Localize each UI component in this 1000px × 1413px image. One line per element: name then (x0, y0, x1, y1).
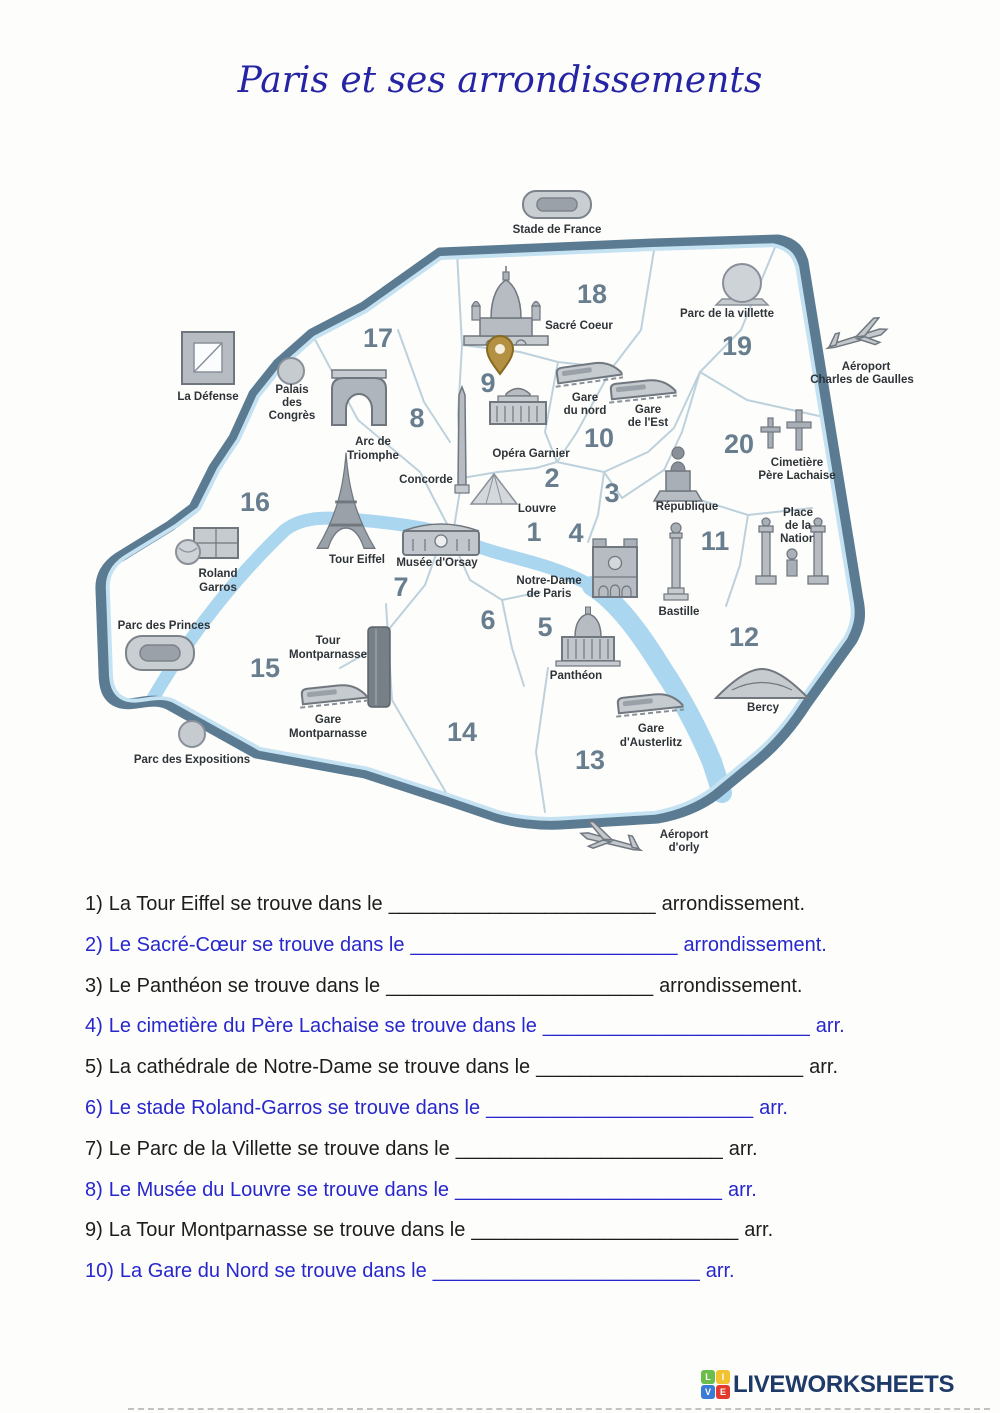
question-text: Le cimetière du Père Lachaise se trouve … (109, 1015, 537, 1037)
district-number: 4 (568, 518, 583, 548)
bercy-icon (716, 669, 808, 698)
sacre-coeur-icon (464, 266, 548, 345)
district-number: 10 (584, 423, 614, 453)
place-de-la-nation-label: Nation (780, 533, 816, 545)
question-suffix: arr. (816, 1015, 845, 1037)
gare-montparnasse-label: Gare (315, 714, 341, 726)
palais-des-congres-icon (278, 358, 304, 384)
pantheon-icon (556, 607, 620, 666)
logo-tile-e: E (716, 1385, 730, 1399)
aeroport-orly-label: d'orly (669, 842, 700, 854)
paris-arrondissements-map: 1 2 3 4 5 6 7 8 9 10 11 12 13 14 15 16 1… (0, 170, 1000, 870)
district-number: 18 (577, 279, 607, 309)
parc-de-la-villette-icon (716, 264, 768, 305)
question-suffix: arr. (728, 1179, 757, 1201)
parc-de-la-villette-label: Parc de la villette (680, 308, 774, 320)
question-suffix: arr. (809, 1056, 838, 1078)
tour-montparnasse-label: Montparnasse (289, 649, 367, 661)
answer-blank[interactable]: ________________________ (433, 1260, 700, 1282)
question-text: Le stade Roland-Garros se trouve dans le (109, 1097, 480, 1119)
arc-de-triomphe-label: Triomphe (347, 450, 399, 462)
question-number: 10) (85, 1260, 114, 1282)
district-number: 5 (537, 612, 552, 642)
question-number: 4) (85, 1015, 103, 1037)
tour-montparnasse-label: Tour (316, 635, 341, 647)
district-number: 2 (544, 463, 559, 493)
district-number: 3 (604, 478, 619, 508)
question-row: 6)Le stade Roland-Garros se trouve dans … (85, 1088, 851, 1129)
district-number: 14 (447, 717, 477, 747)
question-text: Le Musée du Louvre se trouve dans le (109, 1179, 449, 1201)
gare-de-lest-label: Gare (635, 404, 661, 416)
gare-de-lest-label: de l'Est (628, 417, 669, 429)
gare-montparnasse-label: Montparnasse (289, 728, 367, 740)
answer-blank[interactable]: ________________________ (486, 1097, 753, 1119)
question-row: 10)La Gare du Nord se trouve dans le____… (85, 1251, 851, 1292)
question-number: 9) (85, 1219, 103, 1241)
gare-du-nord-label: Gare (572, 392, 598, 404)
place-de-la-nation-label: Place (783, 507, 813, 519)
parc-des-expositions-label: Parc des Expositions (134, 754, 250, 766)
notre-dame-label: Notre-Dame (516, 575, 581, 587)
gare-austerlitz-label: d'Austerlitz (620, 737, 682, 749)
palais-des-congres-label: Congrès (269, 410, 316, 422)
question-row: 7)Le Parc de la Villette se trouve dans … (85, 1129, 851, 1170)
answer-blank[interactable]: ________________________ (536, 1056, 803, 1078)
la-defense-label: La Défense (177, 391, 238, 403)
liveworksheets-tiles-icon: L I V E (701, 1370, 730, 1399)
gare-montparnasse-icon (298, 683, 368, 708)
answer-blank[interactable]: ________________________ (471, 1219, 738, 1241)
tour-montparnasse-icon (368, 627, 390, 707)
logo-tile-v: V (701, 1385, 715, 1399)
question-text: La Gare du Nord se trouve dans le (120, 1260, 427, 1282)
stade-de-france-label: Stade de France (513, 224, 602, 236)
opera-garnier-label: Opéra Garnier (492, 448, 570, 460)
question-text: Le Sacré-Cœur se trouve dans le (109, 934, 405, 956)
tour-eiffel-icon (317, 453, 375, 549)
gare-austerlitz-label: Gare (638, 723, 664, 735)
district-number: 7 (393, 572, 408, 602)
question-row: 4)Le cimetière du Père Lachaise se trouv… (85, 1006, 851, 1047)
logo-tile-i: I (716, 1370, 730, 1384)
airplane-cdg-icon (823, 316, 889, 356)
question-text: La Tour Eiffel se trouve dans le (109, 893, 383, 915)
question-text: Le Parc de la Villette se trouve dans le (109, 1138, 450, 1160)
answer-blank[interactable]: ________________________ (455, 1179, 722, 1201)
musee-dorsay-label: Musée d'Orsay (396, 557, 478, 569)
opera-garnier-icon (490, 389, 546, 425)
answer-blank[interactable]: ________________________ (386, 975, 653, 997)
page-title: Paris et ses arrondissements (0, 60, 1000, 101)
logo-tile-l: L (701, 1370, 715, 1384)
district-number: 9 (480, 368, 495, 398)
question-text: Le Panthéon se trouve dans le (109, 975, 380, 997)
roland-garros-label: Roland (199, 568, 238, 580)
notre-dame-label: de Paris (527, 588, 572, 600)
answer-blank[interactable]: ________________________ (543, 1015, 810, 1037)
answer-blank[interactable]: ________________________ (456, 1138, 723, 1160)
bastille-label: Bastille (659, 606, 700, 618)
concorde-label: Concorde (399, 474, 453, 486)
district-number: 12 (729, 622, 759, 652)
answer-blank[interactable]: ________________________ (389, 893, 656, 915)
aeroport-cdg-label: Aéroport (842, 361, 891, 373)
sacre-coeur-label: Sacré Coeur (545, 320, 613, 332)
question-number: 3) (85, 975, 103, 997)
pere-lachaise-crosses-icon (761, 410, 811, 450)
question-number: 8) (85, 1179, 103, 1201)
answer-blank[interactable]: ________________________ (410, 934, 677, 956)
question-row: 8)Le Musée du Louvre se trouve dans le__… (85, 1170, 851, 1211)
aeroport-orly-label: Aéroport (660, 829, 709, 841)
district-number: 19 (722, 331, 752, 361)
question-suffix: arrondissement. (659, 975, 802, 997)
parc-des-expositions-icon (179, 721, 205, 747)
district-number: 1 (526, 517, 541, 547)
tour-eiffel-label: Tour Eiffel (329, 554, 385, 566)
parc-des-princes-label: Parc des Princes (118, 620, 211, 632)
pere-lachaise-label: Cimetière (771, 457, 823, 469)
liveworksheets-logo: L I V E LIVEWORKSHEETS (701, 1370, 954, 1399)
palais-des-congres-label: Palais (275, 384, 308, 396)
question-number: 5) (85, 1056, 103, 1078)
roland-garros-label: Garros (199, 582, 237, 594)
question-number: 7) (85, 1138, 103, 1160)
question-text: La Tour Montparnasse se trouve dans le (109, 1219, 466, 1241)
la-defense-icon (182, 332, 234, 384)
question-row: 3)Le Panthéon se trouve dans le_________… (85, 966, 851, 1007)
question-suffix: arr. (759, 1097, 788, 1119)
pantheon-label: Panthéon (550, 670, 602, 682)
district-number: 16 (240, 487, 270, 517)
question-row: 5)La cathédrale de Notre-Dame se trouve … (85, 1047, 851, 1088)
page-bottom-cut-line (128, 1408, 990, 1410)
question-row: 2)Le Sacré-Cœur se trouve dans le_______… (85, 925, 851, 966)
question-suffix: arr. (706, 1260, 735, 1282)
bastille-column-icon (664, 523, 688, 600)
district-number: 6 (480, 605, 495, 635)
question-suffix: arrondissement. (662, 893, 805, 915)
questions-list: 1)La Tour Eiffel se trouve dans le______… (85, 884, 851, 1292)
louvre-pyramid-icon (471, 474, 517, 504)
question-row: 9)La Tour Montparnasse se trouve dans le… (85, 1210, 851, 1251)
musee-dorsay-icon (403, 524, 479, 555)
worksheet-page: Paris et ses arrondissements (0, 0, 1000, 1413)
gare-de-lest-icon (607, 378, 677, 403)
question-suffix: arr. (729, 1138, 758, 1160)
arc-de-triomphe-label: Arc de (355, 436, 391, 448)
question-number: 2) (85, 934, 103, 956)
pere-lachaise-label: Père Lachaise (758, 470, 835, 482)
republique-statue-icon (654, 447, 702, 501)
aeroport-cdg-label: Charles de Gaulles (810, 374, 914, 386)
question-row: 1)La Tour Eiffel se trouve dans le______… (85, 884, 851, 925)
question-suffix: arr. (744, 1219, 773, 1241)
question-suffix: arrondissement. (683, 934, 826, 956)
question-text: La cathédrale de Notre-Dame se trouve da… (109, 1056, 530, 1078)
louvre-label: Louvre (518, 503, 556, 515)
gare-du-nord-label: du nord (564, 405, 607, 417)
question-number: 6) (85, 1097, 103, 1119)
palais-des-congres-label: des (282, 397, 302, 409)
liveworksheets-wordmark: LIVEWORKSHEETS (733, 1371, 954, 1399)
bercy-label: Bercy (747, 702, 780, 714)
roland-garros-icon (176, 528, 238, 564)
district-number: 13 (575, 745, 605, 775)
notre-dame-icon (593, 539, 637, 597)
parc-des-princes-icon (126, 636, 194, 670)
arc-de-triomphe-icon (332, 370, 386, 425)
district-number: 17 (363, 323, 393, 353)
district-number: 15 (250, 653, 280, 683)
question-number: 1) (85, 893, 103, 915)
place-de-la-nation-label: de la (785, 520, 812, 532)
district-number: 11 (701, 526, 730, 556)
stade-de-france-icon (523, 191, 591, 218)
district-number: 20 (724, 429, 754, 459)
district-number: 8 (409, 403, 424, 433)
republique-label: République (656, 501, 719, 513)
